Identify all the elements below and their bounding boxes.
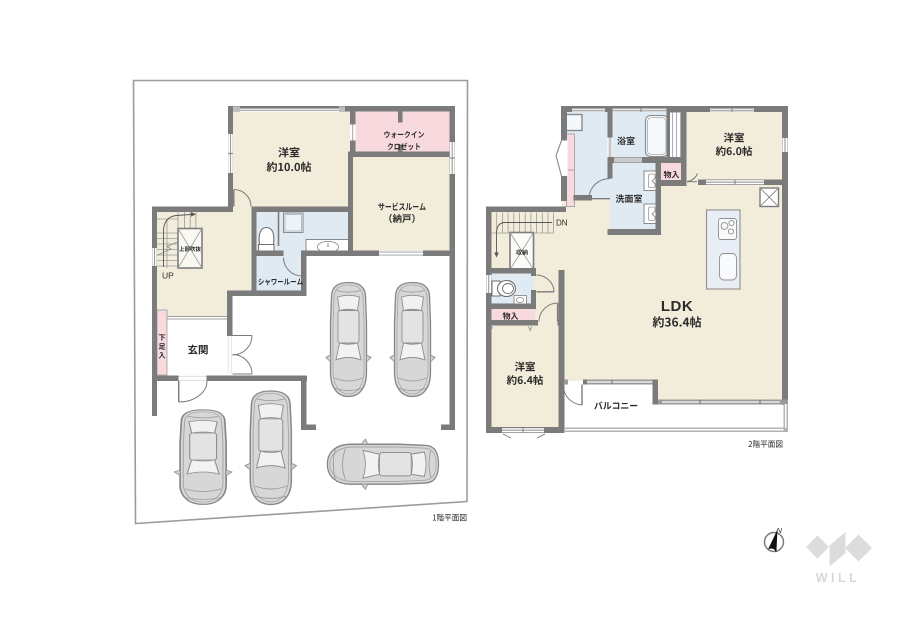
svg-text:DN: DN	[556, 219, 568, 228]
svg-text:LDK: LDK	[661, 298, 693, 315]
svg-text:N: N	[777, 526, 783, 535]
svg-text:UP: UP	[162, 271, 174, 281]
svg-text:WILL: WILL	[816, 571, 861, 585]
